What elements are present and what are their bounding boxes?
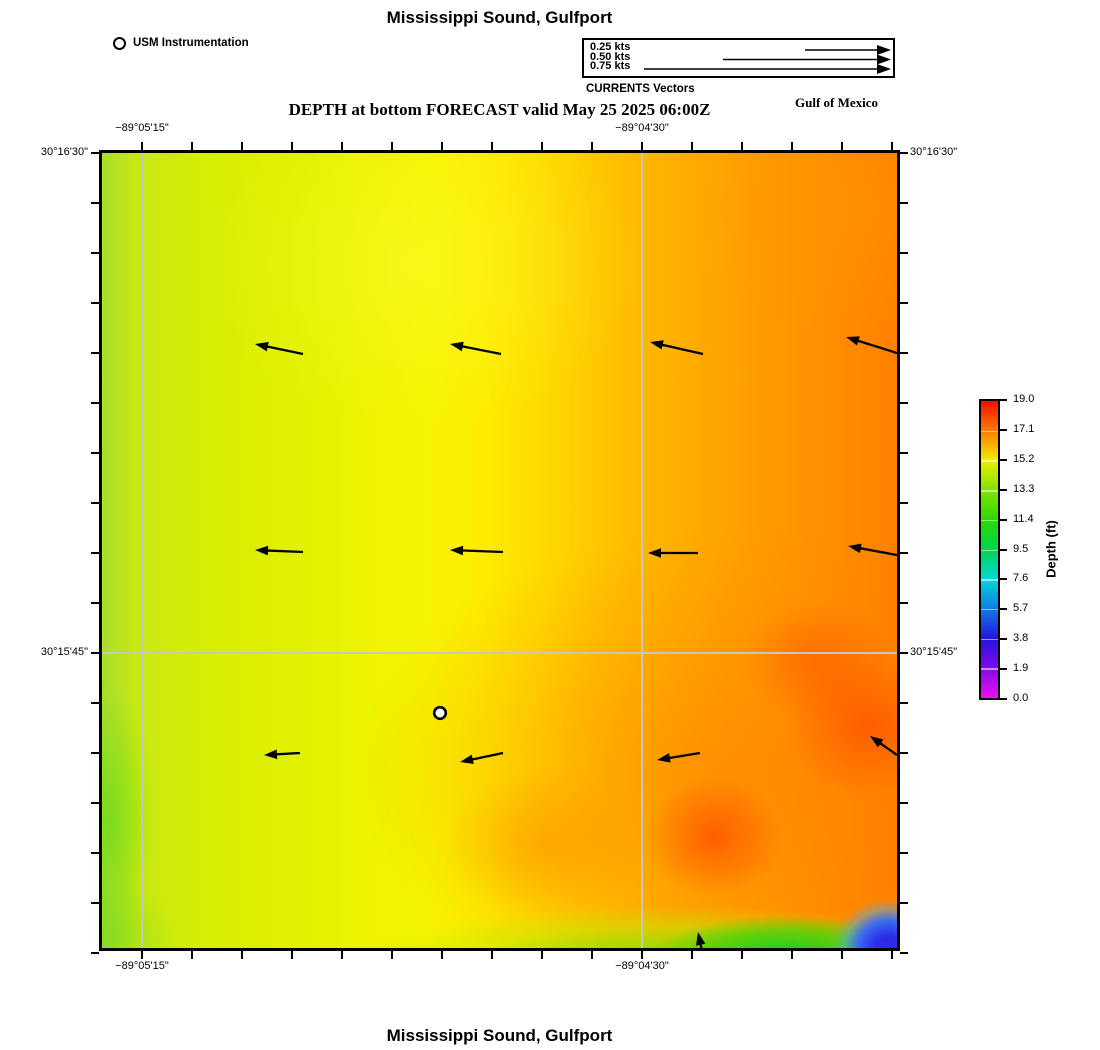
axis-tick-left [91, 752, 99, 754]
axis-tick-left [91, 352, 99, 354]
y-axis-label-left: 30°15'45" [0, 646, 88, 658]
axis-tick-right [900, 602, 908, 604]
bottom-title: Mississippi Sound, Gulfport [99, 1026, 900, 1046]
current-vector-10-shaft [667, 753, 700, 758]
axis-tick-right [900, 252, 908, 254]
colorbar-divider [981, 490, 998, 492]
colorbar-tick-label: 19.0 [1013, 393, 1034, 405]
axis-tick-left [91, 702, 99, 704]
axis-tick-right [900, 402, 908, 404]
axis-tick-bottom [441, 951, 443, 959]
axis-tick-top [141, 142, 143, 150]
current-vector-1-head [450, 342, 464, 351]
current-vector-4-shaft [265, 550, 303, 552]
current-vector-3-shaft [856, 340, 897, 354]
current-vector-5-head [450, 546, 463, 556]
plot-page: { "titles": { "top": "Mississippi Sound,… [0, 0, 1100, 1050]
axis-tick-left [91, 852, 99, 854]
colorbar-divider [981, 668, 998, 670]
legend-speed-label: 0.75 kts [590, 62, 630, 72]
axis-tick-left [91, 802, 99, 804]
axis-tick-bottom [591, 951, 593, 959]
axis-tick-top [241, 142, 243, 150]
axis-tick-left [91, 452, 99, 454]
x-axis-label-top: −89°04'30" [567, 122, 717, 134]
colorbar-axis-label: Depth (ft) [1044, 520, 1059, 578]
current-vector-1-shaft [460, 346, 501, 354]
axis-tick-left [91, 402, 99, 404]
colorbar-tick-label: 3.8 [1013, 632, 1028, 644]
axis-tick-bottom [191, 951, 193, 959]
page-title: Mississippi Sound, Gulfport [99, 8, 900, 28]
axis-tick-top [791, 142, 793, 150]
current-vector-0-head [255, 342, 269, 351]
axis-tick-top [441, 142, 443, 150]
current-vector-12-head [696, 932, 705, 946]
depth-colorbar [979, 399, 1000, 700]
current-vector-11-shaft [878, 742, 897, 755]
current-vector-3-head [846, 336, 860, 345]
current-vector-9-shaft [470, 753, 503, 760]
current-vector-10-head [657, 753, 671, 762]
colorbar-tick-label: 1.9 [1013, 662, 1028, 674]
map-overlay [102, 153, 897, 948]
axis-tick-bottom [691, 951, 693, 959]
colorbar-divider [981, 609, 998, 611]
current-vector-7-shaft [858, 548, 897, 555]
legend-arrow-0.25 kts-head [877, 45, 891, 55]
current-vector-2-head [650, 340, 664, 349]
axis-tick-left [91, 652, 99, 654]
axis-tick-top [691, 142, 693, 150]
axis-tick-bottom [341, 951, 343, 959]
usm-legend-label: USM Instrumentation [133, 37, 249, 49]
forecast-subtitle: DEPTH at bottom FORECAST valid May 25 20… [99, 100, 900, 120]
current-vector-6-head [648, 548, 661, 558]
colorbar-divider [981, 550, 998, 552]
axis-tick-right [900, 902, 908, 904]
depth-heatmap [99, 150, 900, 951]
axis-tick-right [900, 552, 908, 554]
current-vector-2-shaft [660, 344, 703, 354]
axis-tick-top [741, 142, 743, 150]
axis-tick-bottom [391, 951, 393, 959]
axis-tick-top [341, 142, 343, 150]
axis-tick-left [91, 152, 99, 154]
axis-tick-top [891, 142, 893, 150]
colorbar-tick-label: 5.7 [1013, 602, 1028, 614]
axis-tick-top [591, 142, 593, 150]
current-vector-11-head [870, 736, 883, 747]
currents-vector-legend: 0.25 kts0.50 kts0.75 kts [582, 38, 895, 78]
axis-tick-left [91, 502, 99, 504]
axis-tick-bottom [891, 951, 893, 959]
colorbar-tick [1000, 698, 1007, 700]
axis-tick-left [91, 602, 99, 604]
colorbar-tick-label: 7.6 [1013, 572, 1028, 584]
current-vector-8-shaft [274, 753, 300, 754]
axis-tick-left [91, 902, 99, 904]
axis-tick-left [91, 252, 99, 254]
axis-tick-bottom [841, 951, 843, 959]
axis-tick-right [900, 502, 908, 504]
current-vector-9-head [460, 755, 474, 764]
legend-arrow-0.75 kts-head [877, 64, 891, 74]
axis-tick-right [900, 302, 908, 304]
axis-tick-top [491, 142, 493, 150]
axis-tick-right [900, 652, 908, 654]
axis-tick-top [391, 142, 393, 150]
colorbar-tick-label: 11.4 [1013, 513, 1034, 525]
axis-tick-bottom [541, 951, 543, 959]
colorbar-tick [1000, 399, 1007, 401]
colorbar-divider [981, 431, 998, 433]
x-axis-label-top: −89°05'15" [67, 122, 217, 134]
colorbar-tick-label: 9.5 [1013, 543, 1028, 555]
axis-tick-left [91, 952, 99, 954]
colorbar-divider [981, 639, 998, 641]
axis-tick-right [900, 802, 908, 804]
colorbar-tick [1000, 459, 1007, 461]
axis-tick-right [900, 202, 908, 204]
axis-tick-top [541, 142, 543, 150]
current-vector-5-shaft [460, 550, 503, 552]
axis-tick-left [91, 302, 99, 304]
axis-tick-right [900, 852, 908, 854]
colorbar-tick [1000, 519, 1007, 521]
axis-tick-top [291, 142, 293, 150]
x-axis-label-bottom: −89°05'15" [67, 960, 217, 972]
axis-tick-right [900, 702, 908, 704]
current-vector-0-shaft [265, 346, 303, 354]
axis-tick-bottom [791, 951, 793, 959]
colorbar-tick [1000, 608, 1007, 610]
colorbar-divider [981, 520, 998, 522]
current-vector-4-head [255, 546, 268, 556]
colorbar-tick [1000, 578, 1007, 580]
axis-tick-bottom [491, 951, 493, 959]
axis-tick-left [91, 202, 99, 204]
currents-vector-legend-title: CURRENTS Vectors [586, 83, 695, 95]
colorbar-tick-label: 0.0 [1013, 692, 1028, 704]
axis-tick-left [91, 552, 99, 554]
axis-tick-top [841, 142, 843, 150]
axis-tick-right [900, 352, 908, 354]
colorbar-tick [1000, 638, 1007, 640]
axis-tick-top [191, 142, 193, 150]
colorbar-tick-label: 15.2 [1013, 453, 1034, 465]
axis-tick-bottom [241, 951, 243, 959]
axis-tick-bottom [141, 951, 143, 959]
axis-tick-right [900, 452, 908, 454]
colorbar-tick [1000, 668, 1007, 670]
x-axis-label-bottom: −89°04'30" [567, 960, 717, 972]
colorbar-tick [1000, 429, 1007, 431]
legend-arrow-0.50 kts-head [877, 55, 891, 65]
axis-tick-bottom [741, 951, 743, 959]
y-axis-label-left: 30°16'30" [0, 146, 88, 158]
axis-tick-right [900, 752, 908, 754]
axis-tick-right [900, 152, 908, 154]
colorbar-tick-label: 17.1 [1013, 423, 1034, 435]
axis-tick-bottom [641, 951, 643, 959]
current-vector-7-head [848, 544, 862, 553]
axis-tick-bottom [291, 951, 293, 959]
axis-tick-right [900, 952, 908, 954]
colorbar-tick [1000, 489, 1007, 491]
gulf-of-mexico-label: Gulf of Mexico [795, 95, 878, 111]
instrument-marker [434, 707, 446, 719]
colorbar-divider [981, 579, 998, 581]
colorbar-tick-label: 13.3 [1013, 483, 1034, 495]
instrument-marker-icon [113, 37, 126, 50]
colorbar-divider [981, 460, 998, 462]
axis-tick-top [641, 142, 643, 150]
y-axis-label-right: 30°16'30" [910, 146, 1010, 158]
current-vector-8-head [264, 749, 277, 759]
colorbar-tick [1000, 549, 1007, 551]
